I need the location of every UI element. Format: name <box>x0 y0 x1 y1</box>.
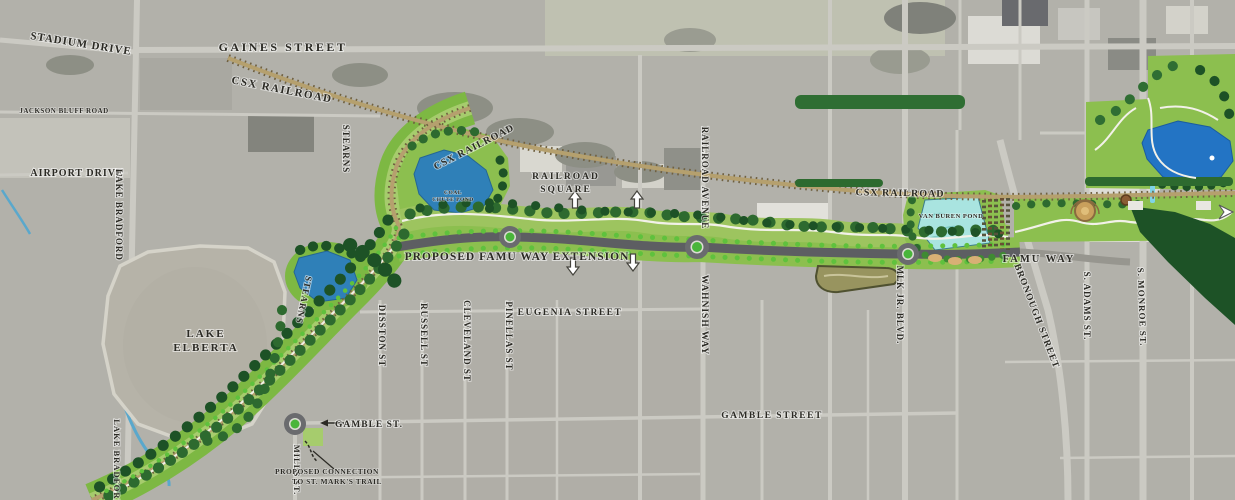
label-railroad-square-line1: RAILROAD <box>532 172 600 182</box>
label-famu-way: FAMU WAY <box>1003 254 1076 265</box>
label-lake-bradford-upper: LAKE BRADFORD <box>114 169 124 261</box>
label-cleveland-st: CLEVELAND ST <box>462 300 472 382</box>
rail-edge-trees-east <box>1085 177 1233 186</box>
label-gaines-street: GAINES STREET <box>219 40 348 54</box>
gamble-roundabout-lawn <box>303 428 323 446</box>
label-gamble-street: GAMBLE STREET <box>721 411 823 421</box>
cascades-fountain <box>1210 156 1215 161</box>
van-buren-pond <box>918 197 990 250</box>
label-disston-st: DISSTON ST <box>377 305 387 368</box>
label-mlk-jr-blvd: MLK JR. BLVD. <box>895 266 905 345</box>
amphitheater-stage <box>1081 207 1089 215</box>
trail-bridge-1 <box>1128 201 1143 210</box>
label-coal-chute-line2: CHUTE POND <box>432 197 474 203</box>
label-csx-railroad-right: CSX RAILROAD <box>855 187 944 200</box>
label-jackson-bluff-road: JACKSON BLUFF ROAD <box>19 107 108 115</box>
pond-mound-1 <box>928 254 942 262</box>
label-lake-elberta-line2: ELBERTA <box>173 342 238 354</box>
label-lake-elberta-line1: LAKE <box>186 328 225 340</box>
label-proposed-extension: PROPOSED FAMU WAY EXTENSION <box>405 251 630 263</box>
label-s-adams-st: S. ADAMS ST. <box>1082 272 1092 341</box>
label-airport-drive: AIRPORT DRIVE <box>30 168 123 179</box>
pond-mound-3 <box>968 256 982 264</box>
label-railroad-avenue: RAILROAD AVENUE <box>700 127 710 230</box>
label-wahnish-way: WAHNISH WAY <box>699 275 709 355</box>
famu-way-extension-plan-map: STADIUM DRIVE GAINES STREET CSX RAILROAD… <box>0 0 1235 500</box>
label-connection-line2: TO ST. MARK'S TRAIL <box>292 477 382 486</box>
roundabout-west <box>499 226 521 248</box>
label-connection-line1: PROPOSED CONNECTION <box>275 467 379 476</box>
tree-band-north <box>795 95 965 109</box>
roundabout-wahnish <box>685 235 709 259</box>
plan-map-canvas: STADIUM DRIVE GAINES STREET CSX RAILROAD… <box>0 0 1235 500</box>
label-stearns-upper: STEARNS <box>341 125 351 174</box>
label-van-buren-pond: VAN BUREN POND <box>919 213 984 220</box>
roundabout-mlk <box>897 243 919 265</box>
trail-bridge-2 <box>1196 201 1211 210</box>
label-russell-st: RUSSELL ST <box>419 303 429 367</box>
label-lake-bradford-lower: LAKE BRADFORD <box>112 419 122 500</box>
label-eugenia-street: EUGENIA STREET <box>518 308 623 318</box>
label-coal-chute-line1: COAL <box>444 190 462 196</box>
label-gamble-st-abbr: GAMBLE ST. <box>335 420 403 430</box>
label-pinellas-st: PINELLAS ST <box>504 301 514 370</box>
label-railroad-square-line2: SQUARE <box>540 185 592 195</box>
roundabout-gamble <box>284 413 306 435</box>
rail-edge-trees-mid <box>795 179 883 187</box>
pond-mound-2 <box>948 257 962 265</box>
